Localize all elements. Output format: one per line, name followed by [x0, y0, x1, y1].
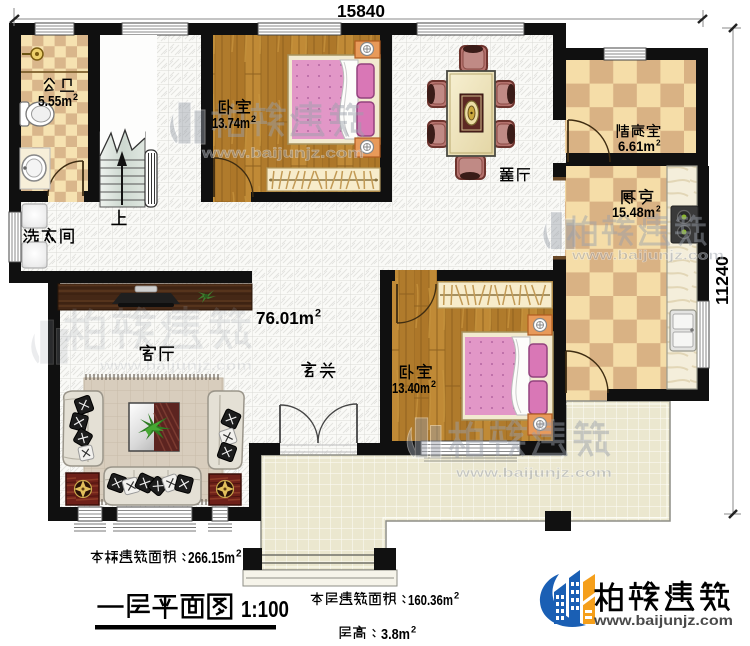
svg-text:2: 2: [431, 379, 436, 389]
svg-text:6.61m: 6.61m: [618, 139, 655, 154]
svg-text:15.48m: 15.48m: [612, 205, 655, 220]
svg-text:1:100: 1:100: [241, 596, 289, 622]
svg-text:www.baijunjz.com: www.baijunjz.com: [571, 249, 724, 263]
svg-text:13.74m: 13.74m: [212, 116, 250, 132]
svg-text:2: 2: [656, 203, 661, 213]
svg-text:www.baijunjz.com: www.baijunjz.com: [455, 465, 612, 480]
svg-text:2: 2: [251, 114, 256, 124]
svg-text:www.baijunjz.com: www.baijunjz.com: [593, 613, 733, 628]
svg-text:2: 2: [236, 548, 242, 559]
svg-text:2: 2: [411, 625, 416, 635]
svg-text:160.36m: 160.36m: [408, 592, 453, 609]
svg-text:76.01m: 76.01m: [256, 308, 314, 328]
svg-text:2: 2: [315, 308, 321, 320]
svg-text:2: 2: [454, 591, 459, 601]
svg-text:15840: 15840: [337, 1, 385, 21]
svg-text:2: 2: [73, 92, 78, 102]
svg-text:www.baijunjz.com: www.baijunjz.com: [99, 357, 252, 373]
svg-text:266.15m: 266.15m: [188, 550, 235, 567]
svg-text:www.baijunjz.com: www.baijunjz.com: [201, 146, 364, 161]
svg-text:11240: 11240: [712, 256, 732, 305]
svg-text:2: 2: [656, 137, 661, 147]
svg-text:5.55m: 5.55m: [38, 94, 72, 110]
svg-text:3.8m: 3.8m: [381, 626, 410, 643]
svg-text:13.40m: 13.40m: [392, 381, 430, 397]
